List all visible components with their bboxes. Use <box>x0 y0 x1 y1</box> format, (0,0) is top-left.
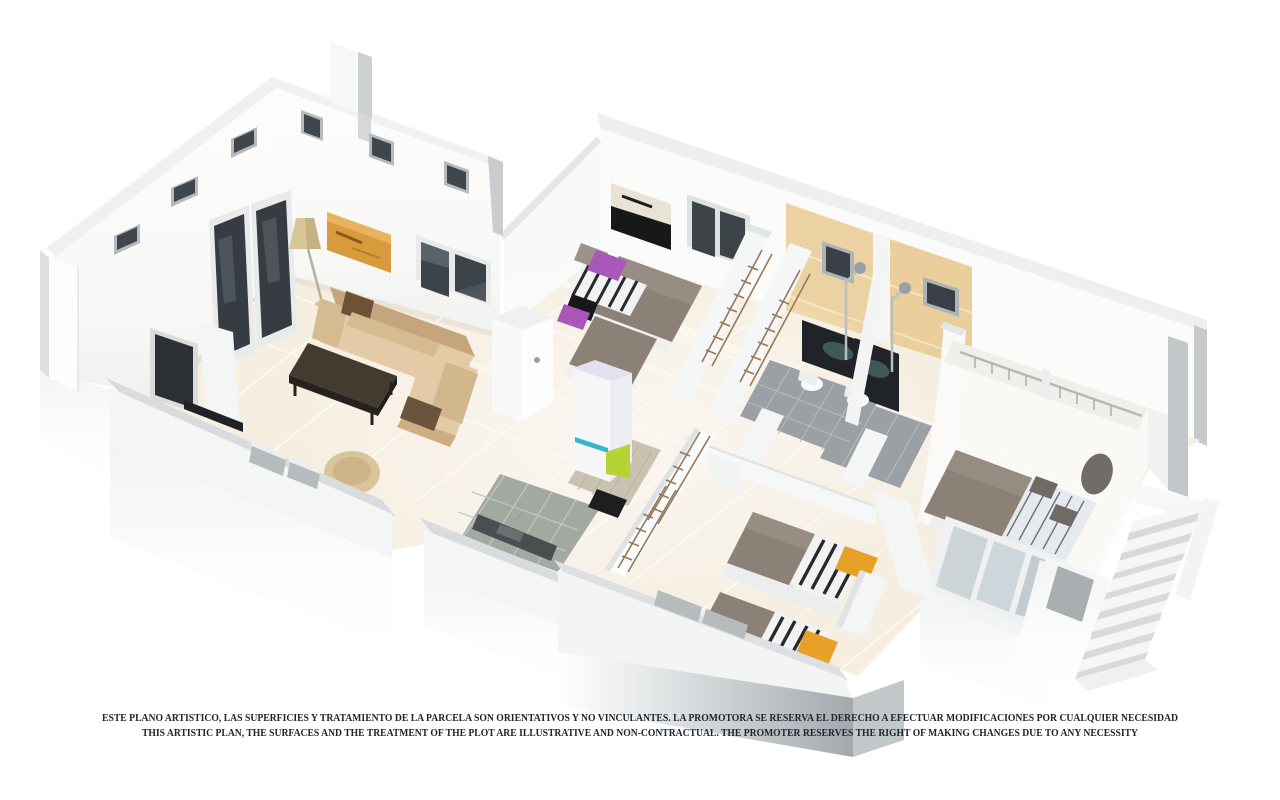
svg-text:ESTE PLANO ARTISTICO, LAS SUPE: ESTE PLANO ARTISTICO, LAS SUPERFICIES Y … <box>102 713 1178 724</box>
svg-text:THIS ARTISTIC PLAN, THE SURFAC: THIS ARTISTIC PLAN, THE SURFACES AND THE… <box>142 728 1138 739</box>
